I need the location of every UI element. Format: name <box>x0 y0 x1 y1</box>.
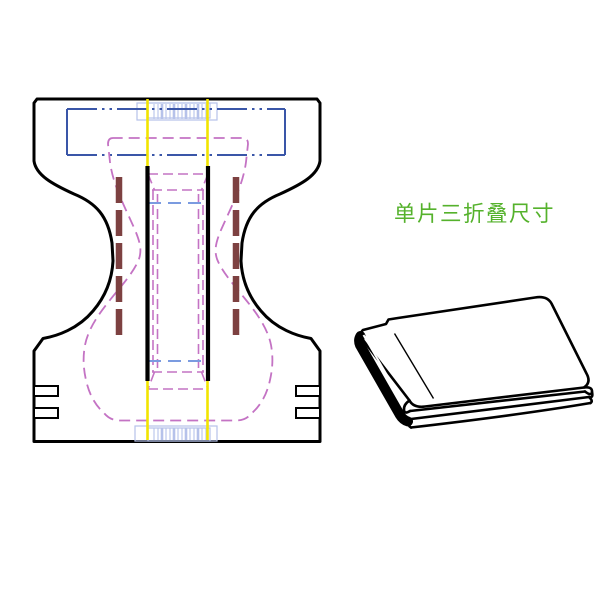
flat-spread-view <box>34 99 320 442</box>
tape-tab-right-upper <box>296 386 320 396</box>
folded-package-view <box>359 297 592 427</box>
tape-tab-left-upper <box>34 386 58 396</box>
technical-drawing <box>0 0 600 600</box>
tape-tab-right-lower <box>296 408 320 418</box>
tape-tab-left-lower <box>34 408 58 418</box>
canvas: 单片三折叠尺寸 <box>0 0 600 600</box>
caption-trifold-size: 单片三折叠尺寸 <box>394 202 594 228</box>
chassis-outline <box>34 99 320 442</box>
fold-right-wrap-1 <box>584 387 592 394</box>
